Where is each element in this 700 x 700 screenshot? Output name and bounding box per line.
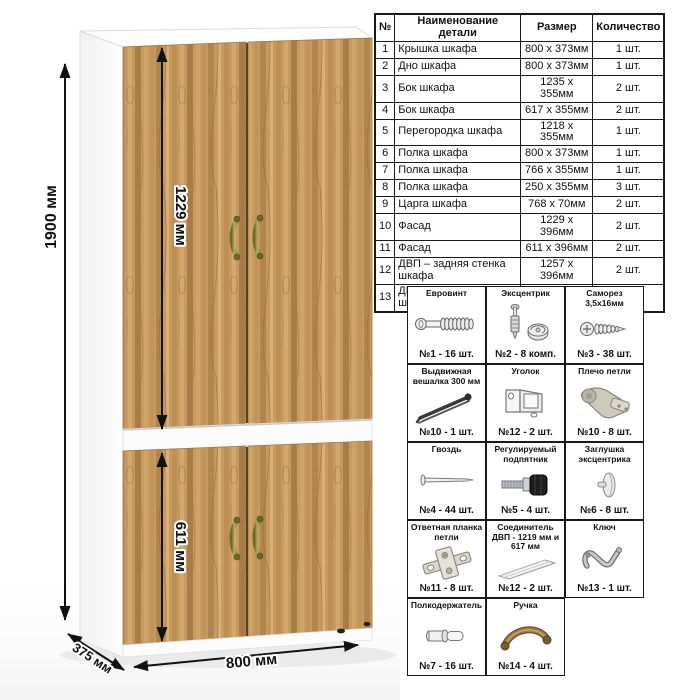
part-qty: 1 шт. [593, 163, 665, 180]
hardware-cell-plecho-petli: Плечо петли №10 - 8 шт. [565, 364, 644, 442]
part-row: 11Фасад611 х 396мм2 шт. [375, 241, 664, 258]
hardware-cell-ugolok: Уголок №12 - 2 шт. [486, 364, 565, 442]
hardware-cell-klyuch: Ключ №13 - 1 шт. [565, 520, 644, 598]
part-row: 2Дно шкафа800 х 373мм1 шт. [375, 58, 664, 75]
parts-table-header: № Наименование детали Размер Количество [375, 14, 664, 41]
handle-icon [488, 611, 563, 661]
hardware-cell-excentrik: Эксцентрик №2 - 8 комп. [486, 286, 565, 364]
wardrobe-illustration: 1900 мм 1229 мм 611 мм 800 мм 375 мм [0, 0, 400, 700]
part-qty: 2 шт. [593, 214, 665, 241]
part-row: 5Перегородка шкафа1218 х 355мм1 шт. [375, 119, 664, 146]
part-size: 800 х 373мм [521, 58, 593, 75]
part-qty: 2 шт. [593, 258, 665, 285]
corner-bracket-icon [488, 377, 563, 427]
part-name: Дно шкафа [395, 58, 521, 75]
cam-cover-icon [567, 464, 642, 505]
hardware-cell-polkoderzhatel: Полкодержатель №7 - 16 шт. [407, 598, 486, 676]
part-row: 3Бок шкафа1235 х 355мм2 шт. [375, 75, 664, 102]
hardware-qty: №12 - 2 шт. [498, 427, 553, 439]
hardware-qty: №10 - 1 шт. [419, 427, 474, 439]
hardware-qty: №6 - 8 шт. [580, 505, 629, 517]
part-num: 9 [375, 197, 395, 214]
part-name: Фасад [395, 241, 521, 258]
part-name: Полка шкафа [395, 146, 521, 163]
part-size: 611 х 396мм [521, 241, 593, 258]
hardware-cell-veshalka: Выдвижная вешалка 300 мм №10 - 1 шт. [407, 364, 486, 442]
hardware-title: Плечо петли [567, 367, 642, 377]
parts-table: № Наименование детали Размер Количество … [374, 13, 665, 313]
part-size: 250 х 355мм [521, 180, 593, 197]
hardware-cell-eurovint: Евровинт №1 - 16 шт. [407, 286, 486, 364]
cabinet-side-panel [80, 31, 123, 657]
hardware-qty: №2 - 8 комп. [495, 349, 556, 361]
part-size: 1257 х 396мм [521, 258, 593, 285]
hardware-title: Полкодержатель [409, 601, 484, 611]
part-num: 13 [375, 284, 395, 311]
part-size: 800 х 373мм [521, 146, 593, 163]
part-name: Крышка шкафа [395, 41, 521, 58]
part-num: 1 [375, 41, 395, 58]
upper-right-door [248, 38, 372, 424]
hardware-title: Гвоздь [409, 445, 484, 455]
part-num: 11 [375, 241, 395, 258]
hardware-cell-ruchka: Ручка №14 - 4 шт. [486, 598, 565, 676]
self-tapping-screw-icon [567, 308, 642, 349]
hinge-arm-icon [567, 377, 642, 427]
part-name: Бок шкафа [395, 75, 521, 102]
part-qty: 2 шт. [593, 241, 665, 258]
header-size: Размер [521, 14, 593, 41]
hardware-cell-samorez: Саморез 3,5х16мм №3 - 38 шт. [565, 286, 644, 364]
hardware-title: Евровинт [409, 289, 484, 299]
hardware-title: Эксцентрик [488, 289, 563, 299]
part-size: 1218 х 355мм [521, 119, 593, 146]
hardware-qty: №7 - 16 шт. [419, 661, 474, 673]
euro-screw-icon [409, 299, 484, 349]
part-qty: 1 шт. [593, 146, 665, 163]
pull-out-hanger-icon [409, 386, 484, 427]
hardware-qty: №13 - 1 шт. [577, 583, 632, 595]
part-size: 617 х 355мм [521, 102, 593, 119]
nail-icon [409, 455, 484, 505]
hardware-qty: №10 - 8 шт. [577, 427, 632, 439]
adjustable-foot-icon [488, 464, 563, 505]
part-qty: 1 шт. [593, 58, 665, 75]
hardware-qty: №11 - 8 шт. [419, 583, 473, 595]
part-num: 10 [375, 214, 395, 241]
part-name: Полка шкафа [395, 163, 521, 180]
part-row: 7Полка шкафа766 х 355мм1 шт. [375, 163, 664, 180]
part-row: 4Бок шкафа617 х 355мм2 шт. [375, 102, 664, 119]
part-num: 2 [375, 58, 395, 75]
hardware-cell-otvetnaya-planka: Ответная планка петли №11 - 8 шт. [407, 520, 486, 598]
part-name: ДВП – задняя стенка шкафа [395, 258, 521, 285]
hardware-grid: Евровинт №1 - 16 шт. Эксцентрик [407, 286, 644, 676]
part-row: 1Крышка шкафа800 х 373мм1 шт. [375, 41, 664, 58]
cabinet-foot [337, 629, 345, 634]
part-num: 5 [375, 119, 395, 146]
hardware-title: Соединитель ДВП - 1219 мм и 617 мм [488, 523, 563, 552]
part-qty: 3 шт. [593, 180, 665, 197]
upper-door-dimension-label: 1229 мм [172, 186, 189, 246]
part-num: 4 [375, 102, 395, 119]
hardware-title: Уголок [488, 367, 563, 377]
header-num: № [375, 14, 395, 41]
hardware-title: Регулируемый подпятник [488, 445, 563, 464]
hardware-qty: №12 - 2 шт. [498, 583, 553, 595]
part-row: 9Царга шкафа768 х 70мм2 шт. [375, 197, 664, 214]
hardware-title: Заглушка эксцентрика [567, 445, 642, 464]
hardware-title: Ответная планка петли [409, 523, 484, 542]
part-size: 800 х 373мм [521, 41, 593, 58]
part-qty: 2 шт. [593, 197, 665, 214]
hardware-title: Саморез 3,5х16мм [567, 289, 642, 308]
hardware-grid-empty-slot [565, 598, 644, 676]
lower-right-door [248, 441, 372, 637]
hardware-qty: №3 - 38 шт. [577, 349, 632, 361]
part-row: 6Полка шкафа800 х 373мм1 шт. [375, 146, 664, 163]
part-size: 1235 х 355мм [521, 75, 593, 102]
cabinet-foot [364, 622, 371, 626]
part-name: Полка шкафа [395, 180, 521, 197]
hardware-title: Ключ [567, 523, 642, 533]
header-name: Наименование детали [395, 14, 521, 41]
part-num: 8 [375, 180, 395, 197]
part-qty: 2 шт. [593, 75, 665, 102]
hdf-connector-icon [488, 552, 563, 583]
hardware-cell-soedinitel: Соединитель ДВП - 1219 мм и 617 мм №12 -… [486, 520, 565, 598]
hardware-cell-gvozd: Гвоздь №4 - 44 шт. [407, 442, 486, 520]
hardware-qty: №1 - 16 шт. [419, 349, 474, 361]
hex-key-icon [567, 533, 642, 583]
part-name: Бок шкафа [395, 102, 521, 119]
part-num: 12 [375, 258, 395, 285]
hardware-qty: №4 - 44 шт. [419, 505, 474, 517]
part-name: Фасад [395, 214, 521, 241]
part-size: 766 х 355мм [521, 163, 593, 180]
hinge-plate-icon [409, 542, 484, 583]
hardware-cell-podpyatnik: Регулируемый подпятник №5 - 4 шт. [486, 442, 565, 520]
cam-lock-icon [488, 299, 563, 349]
hardware-qty: №14 - 4 шт. [498, 661, 553, 673]
part-qty: 2 шт. [593, 102, 665, 119]
part-num: 6 [375, 146, 395, 163]
lower-door-dimension-label: 611 мм [172, 522, 189, 573]
hardware-title: Ручка [488, 601, 563, 611]
part-qty: 1 шт. [593, 119, 665, 146]
part-qty: 1 шт. [593, 41, 665, 58]
part-num: 3 [375, 75, 395, 102]
hardware-title: Выдвижная вешалка 300 мм [409, 367, 484, 386]
part-size: 768 х 70мм [521, 197, 593, 214]
part-row: 10Фасад1229 х 396мм2 шт. [375, 214, 664, 241]
height-dimension-label: 1900 мм [43, 185, 60, 249]
part-name: Перегородка шкафа [395, 119, 521, 146]
part-num: 7 [375, 163, 395, 180]
part-row: 8Полка шкафа250 х 355мм3 шт. [375, 180, 664, 197]
header-qty: Количество [593, 14, 665, 41]
hardware-cell-zaglushka: Заглушка эксцентрика №6 - 8 шт. [565, 442, 644, 520]
part-name: Царга шкафа [395, 197, 521, 214]
part-row: 12ДВП – задняя стенка шкафа1257 х 396мм2… [375, 258, 664, 285]
shelf-pin-icon [409, 611, 484, 661]
part-size: 1229 х 396мм [521, 214, 593, 241]
hardware-qty: №5 - 4 шт. [501, 505, 550, 517]
